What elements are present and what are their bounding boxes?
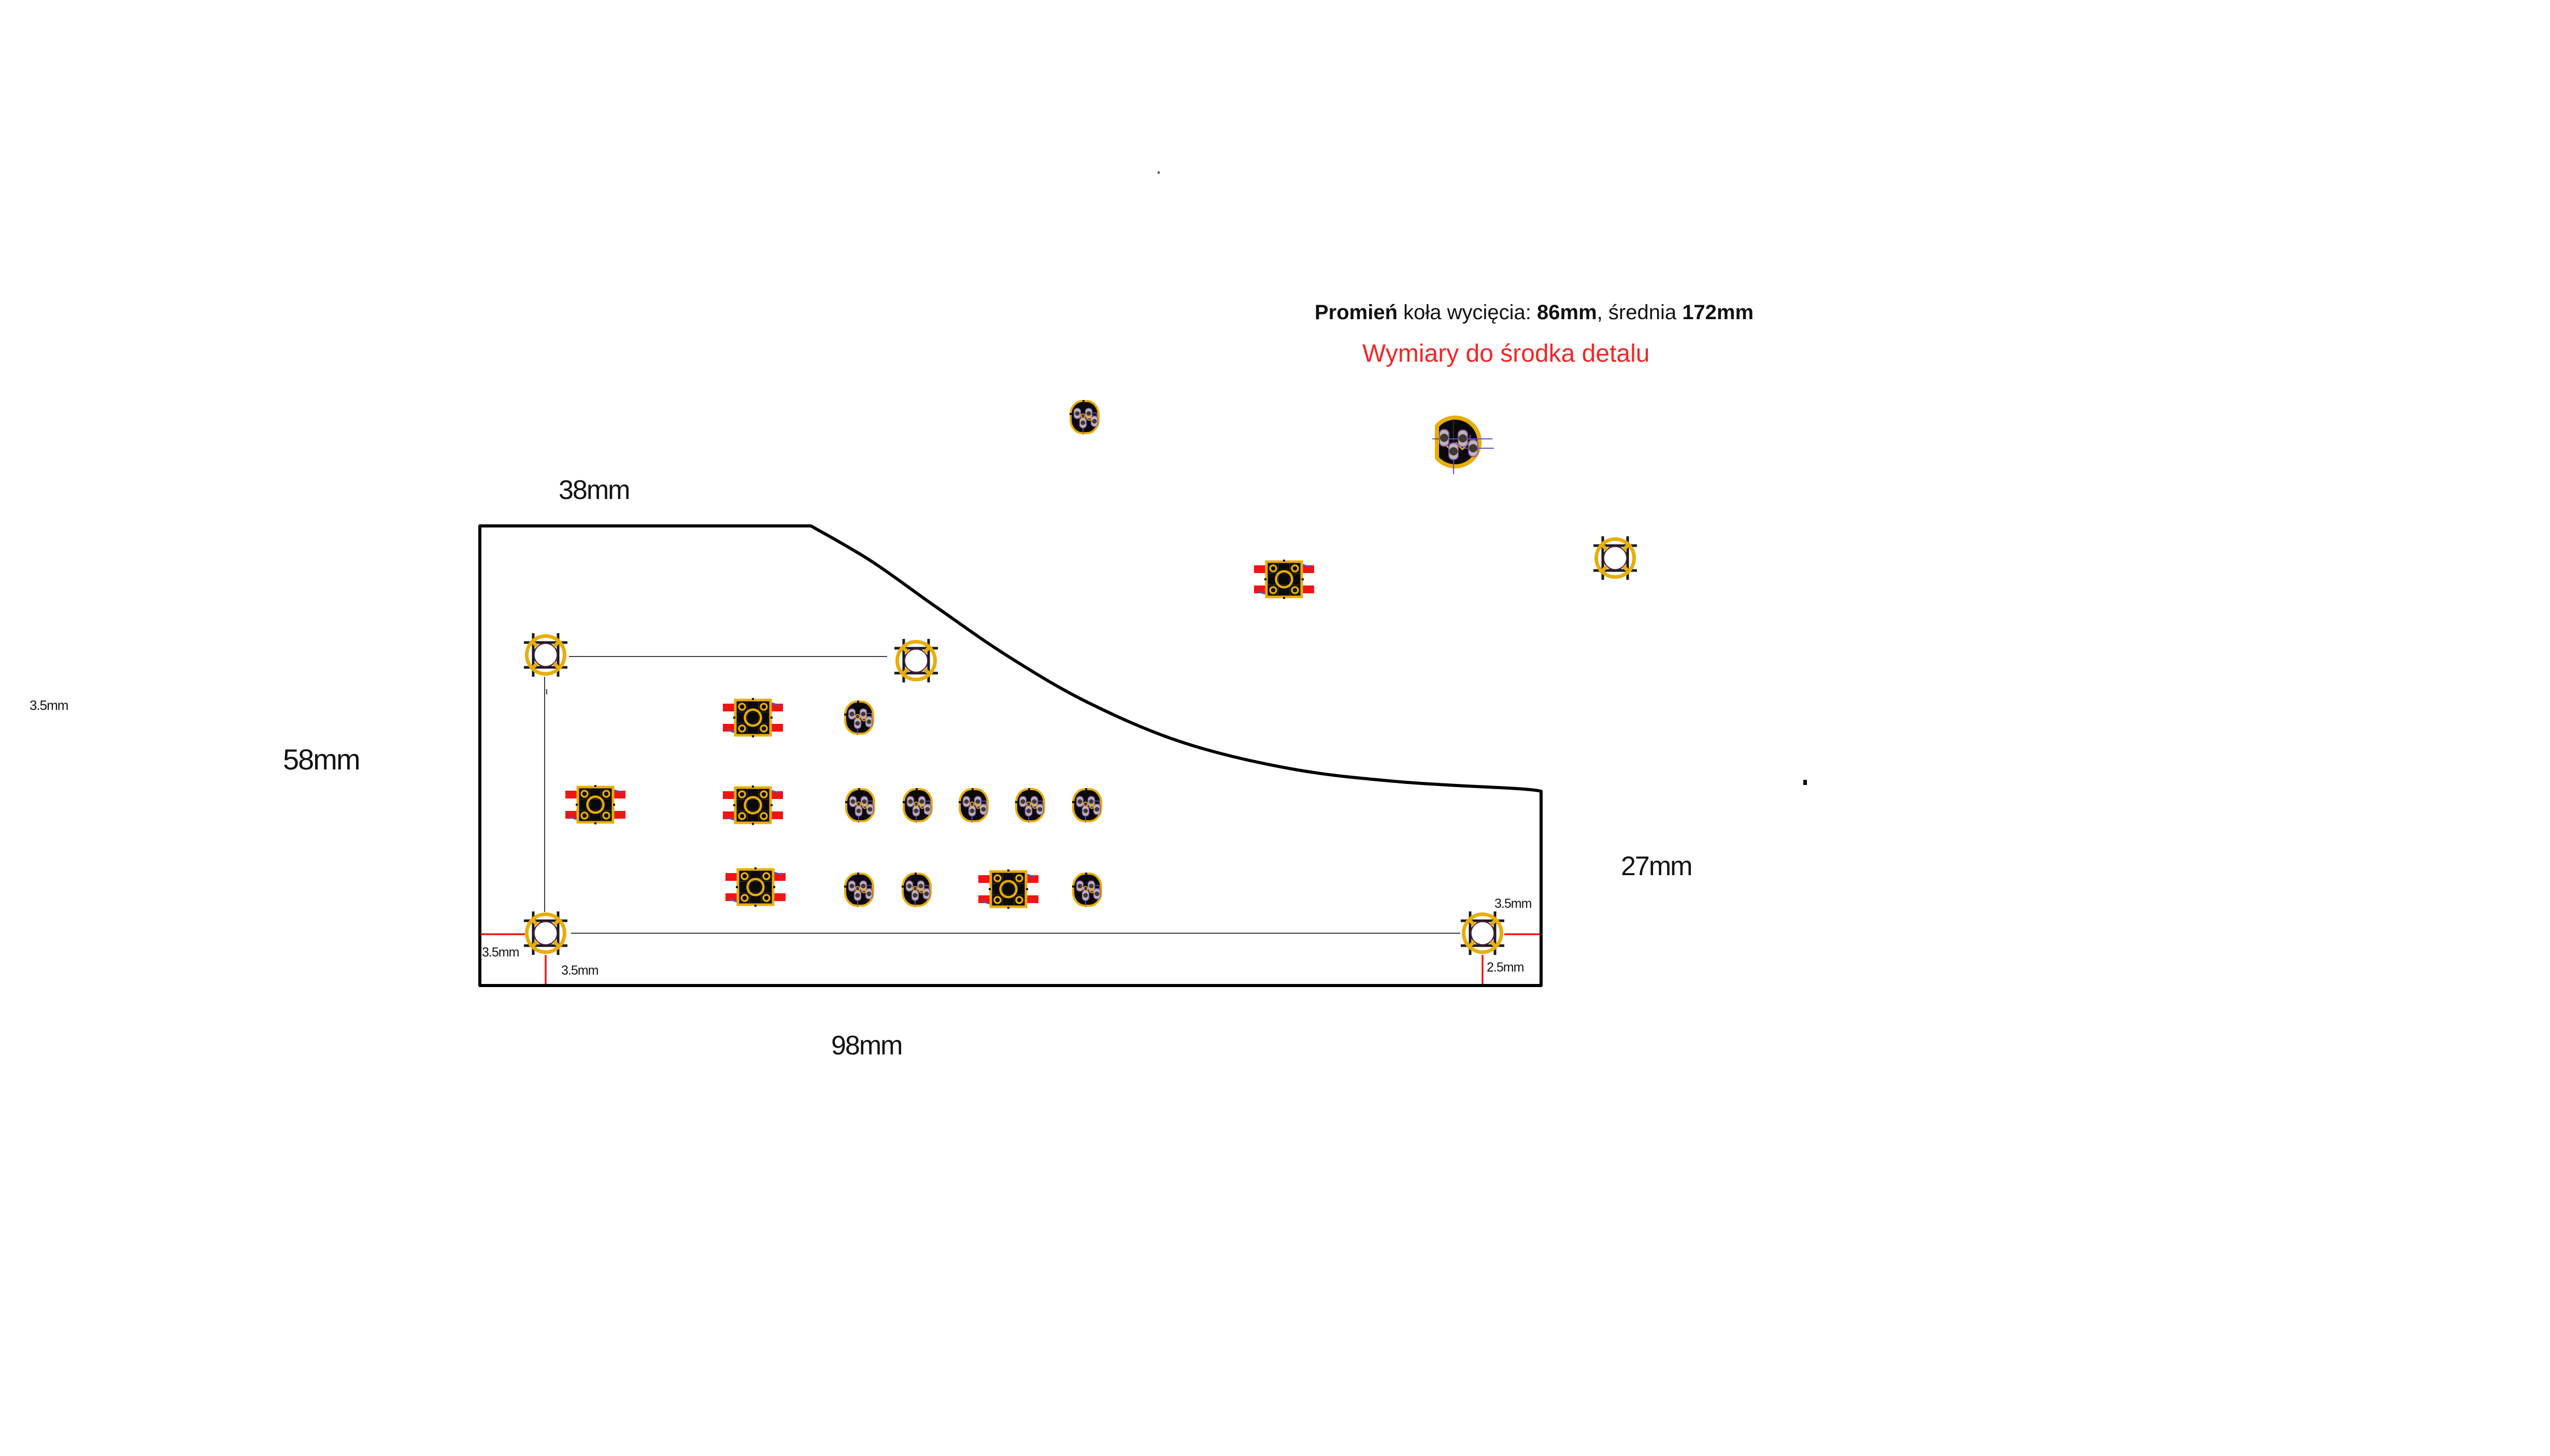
tact-switch-switch-6-stray xyxy=(1254,560,1314,599)
dim-offset-bl-x: 3.5mm xyxy=(482,946,519,959)
drawing-svg xyxy=(0,0,2550,1456)
dim-left-height: 58mm xyxy=(283,745,360,774)
note-cutout-radius: Promień koła wycięcia: 86mm, średnia 172… xyxy=(1315,302,1754,323)
note-regular-2: , średnia xyxy=(1597,301,1683,324)
dim-offset-br-y: 2.5mm xyxy=(1487,961,1523,974)
dim-offset-br-x: 3.5mm xyxy=(1494,897,1531,910)
dim-right-height: 27mm xyxy=(1621,853,1691,880)
tick-under-hole1 xyxy=(546,689,547,694)
smd-footprint-footprint-2 xyxy=(845,788,874,823)
dim-bottom-width: 98mm xyxy=(831,1032,902,1059)
smd-footprint-footprint-5 xyxy=(1015,788,1044,823)
note-bold-promien: Promień xyxy=(1315,301,1398,324)
note-bold-diameter-value: 172mm xyxy=(1682,301,1754,324)
smd-footprint-footprint-3 xyxy=(903,788,932,823)
smd-footprint-footprint-6 xyxy=(1072,788,1101,823)
smd-footprint-footprint-1 xyxy=(844,701,873,735)
smd-footprint-footprint-10-stray xyxy=(1070,400,1099,435)
smd-footprint-footprint-4 xyxy=(959,788,988,823)
speck-top xyxy=(1158,172,1160,174)
smd-footprint-footprint-8 xyxy=(902,873,931,907)
smd-footprint-footprint-large-stray xyxy=(1432,418,1494,474)
note-bold-radius-value: 86mm xyxy=(1537,301,1597,324)
smd-footprint-footprint-7 xyxy=(844,873,873,907)
board-outline xyxy=(480,526,1541,986)
note-regular-1: koła wycięcia: xyxy=(1398,301,1537,324)
pcb-dimension-drawing: Promień koła wycięcia: 86mm, średnia 172… xyxy=(0,0,2550,1456)
smd-footprint-footprint-9 xyxy=(1072,873,1101,907)
speck-right xyxy=(1803,780,1807,785)
mounting-hole-hole-5-stray xyxy=(1593,536,1637,580)
dim-offset-bl-y: 3.5mm xyxy=(561,964,598,977)
note-dimensions-to-center: Wymiary do środka detalu xyxy=(1362,341,1649,366)
dim-top-width: 38mm xyxy=(559,477,629,504)
dim-offset-far-left: 3.5mm xyxy=(30,698,68,712)
